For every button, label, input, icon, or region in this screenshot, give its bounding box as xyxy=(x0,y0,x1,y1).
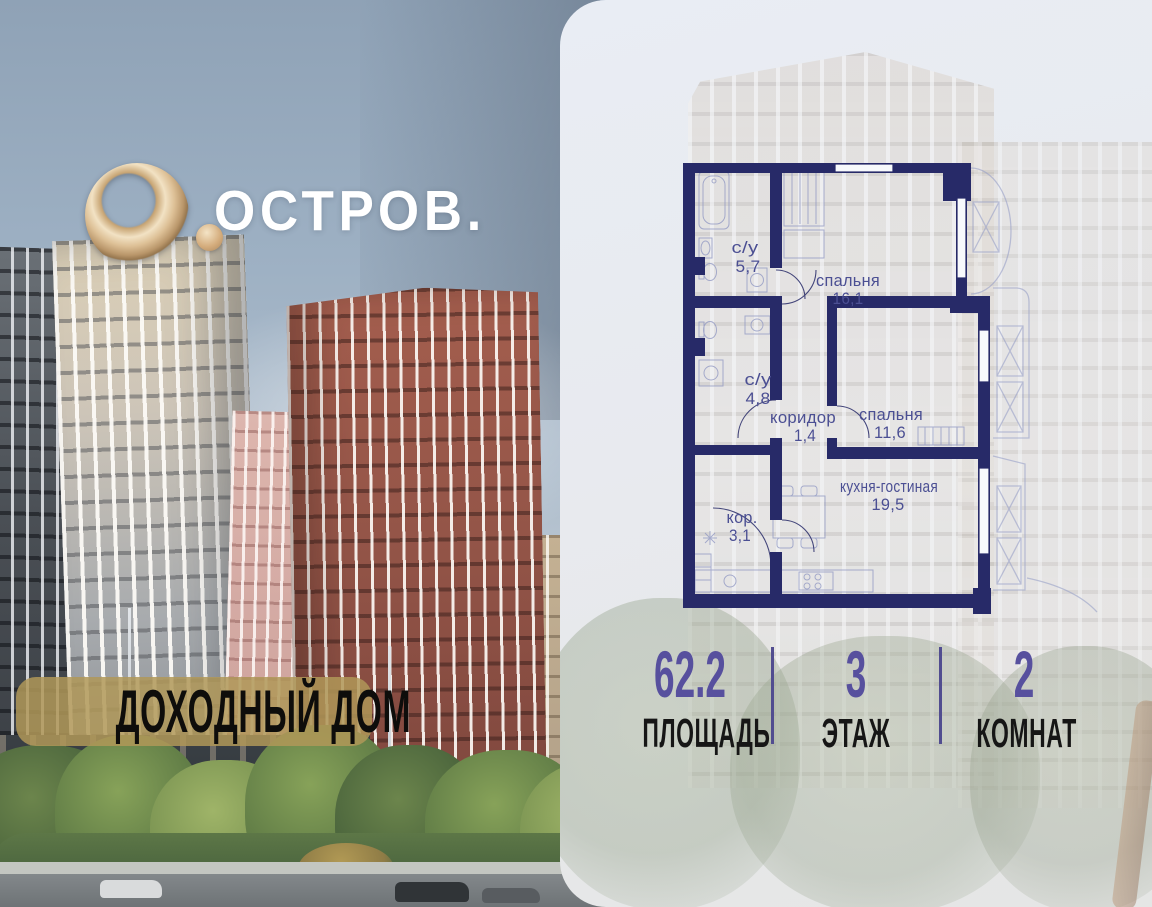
project-badge: ДОХОДНЫЙ ДОМ xyxy=(16,677,372,746)
stat-floor-value: 3 xyxy=(808,642,903,706)
info-panel: с/у 5,7 спальня 16,1 с/у 4,8 коридор 1,4… xyxy=(560,0,1152,907)
room-label: кухня-гостиная xyxy=(840,478,938,496)
stat-floor: 3 ЭТАЖ xyxy=(771,642,941,754)
stat-area: 62.2 ПЛОЩАДЬ xyxy=(605,642,775,754)
brand-logo-icon xyxy=(85,163,189,267)
car-white xyxy=(100,880,162,898)
room-area: 19,5 xyxy=(872,496,905,514)
room-area: 3,1 xyxy=(729,527,751,545)
room-label: кор. xyxy=(727,509,758,527)
room-label: спальня xyxy=(816,272,880,290)
stat-area-label: ПЛОЩАДЬ xyxy=(642,713,737,754)
car-gray xyxy=(482,888,540,903)
room-label: с/у xyxy=(732,239,760,257)
room-area: 16,1 xyxy=(833,290,864,308)
stat-rooms-label: КОМНАТ xyxy=(976,713,1071,754)
car-dark xyxy=(395,882,469,902)
room-area: 1,4 xyxy=(794,427,816,445)
room-label: с/у xyxy=(745,371,773,389)
stat-area-value: 62.2 xyxy=(642,642,737,706)
project-badge-label: ДОХОДНЫЙ ДОМ xyxy=(94,677,293,746)
stat-floor-label: ЭТАЖ xyxy=(808,713,903,754)
listing-card: ОСТРОВ. ДОХОДНЫЙ ДОМ xyxy=(0,0,1152,907)
stat-rooms: 2 КОМНАТ xyxy=(939,642,1109,754)
floor-plan: с/у 5,7 спальня 16,1 с/у 4,8 коридор 1,4… xyxy=(655,138,1152,638)
stat-rooms-value: 2 xyxy=(976,642,1071,706)
room-area: 4,8 xyxy=(746,390,771,408)
walls xyxy=(683,163,991,614)
room-area: 5,7 xyxy=(736,258,761,276)
room-label: спальня xyxy=(859,406,923,424)
room-label: коридор xyxy=(770,409,836,427)
brand-logo-text: ОСТРОВ. xyxy=(214,182,486,240)
room-area: 11,6 xyxy=(874,424,906,442)
